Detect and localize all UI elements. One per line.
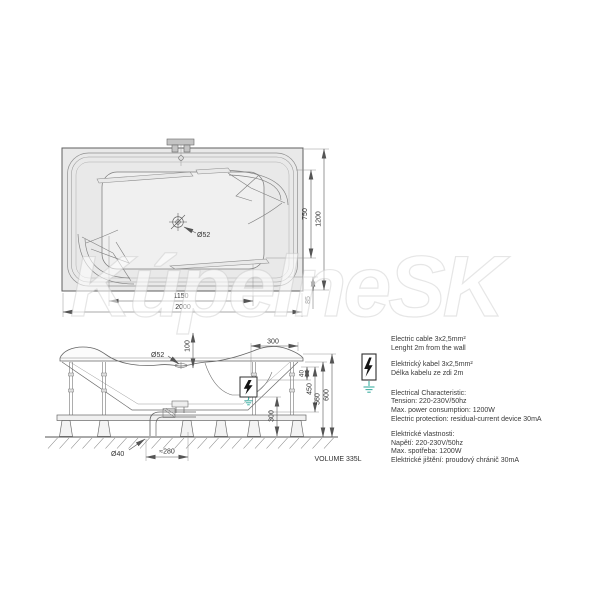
spec-line: Elektrické jištění: proudový chránič 30m…	[391, 457, 596, 466]
cable-note-en: Electric cable 3x2,5mm² Lenght 2m from t…	[391, 336, 596, 353]
watermark: KúpelneSK	[70, 239, 511, 335]
ground-hatching	[48, 438, 334, 449]
spec-line: Elektrické vlastnosti:	[391, 431, 596, 440]
spec-line: Max. spotřeba: 1200W	[391, 448, 596, 457]
electrical-characteristics-en: Electrical Characteristic: Tension: 220-…	[391, 390, 596, 424]
spec-line: Napětí: 220-230V/50hz	[391, 440, 596, 449]
spec-line: Tension: 220-230V/50hz	[391, 398, 596, 407]
bathtub-spec-sheet: Ø52 750 1200 85 1150 2000	[0, 0, 600, 600]
side-view: 300 100 40 450 560 600 300 ≈280 Ø52 Ø40 …	[45, 333, 362, 463]
dim-total-length: 1200	[316, 211, 323, 227]
ground-icon	[364, 381, 375, 392]
electric-legend-icon	[362, 354, 376, 392]
dim-frame-height: 560	[315, 393, 322, 405]
electrical-spec-text: Electric cable 3x2,5mm² Lenght 2m from t…	[391, 336, 596, 465]
spec-line: Electrical Characteristic:	[391, 390, 596, 399]
dim-unit-width: 300	[267, 339, 279, 346]
electrical-characteristics-cz: Elektrické vlastnosti: Napětí: 220-230V/…	[391, 431, 596, 465]
dim-rim-drop: 40	[299, 370, 306, 378]
dim-inner-length: 750	[302, 208, 309, 220]
technical-drawing: Ø52 750 1200 85 1150 2000	[0, 0, 600, 600]
ground-icon	[244, 398, 252, 405]
spec-line: Electric cable 3x2,5mm²	[391, 336, 596, 345]
spec-line: Lenght 2m from the wall	[391, 345, 596, 354]
spec-line: Elektrický kabel 3x2,5mm²	[391, 361, 596, 370]
electric-box	[240, 377, 257, 405]
dim-drain-inset: 100	[185, 340, 192, 352]
spec-line: Délka kabelu ze zdi 2m	[391, 370, 596, 379]
drain-label-top: Ø52	[197, 232, 210, 239]
volume-label: VOLUME 335L	[314, 456, 361, 463]
dim-mid-height: 450	[307, 383, 314, 395]
dim-clearance: 300	[269, 410, 276, 422]
pipe-label: Ø40	[111, 451, 124, 458]
drain-label-side: Ø52	[151, 352, 164, 359]
dim-trap-offset: ≈280	[159, 449, 175, 456]
cable-note-cz: Elektrický kabel 3x2,5mm² Délka kabelu z…	[391, 361, 596, 378]
feet	[60, 421, 304, 437]
spec-line: Electric protection: residual-current de…	[391, 416, 596, 425]
dim-total-height: 600	[324, 389, 331, 401]
spec-line: Max. power consumption: 1200W	[391, 407, 596, 416]
tub-profile	[60, 347, 303, 366]
